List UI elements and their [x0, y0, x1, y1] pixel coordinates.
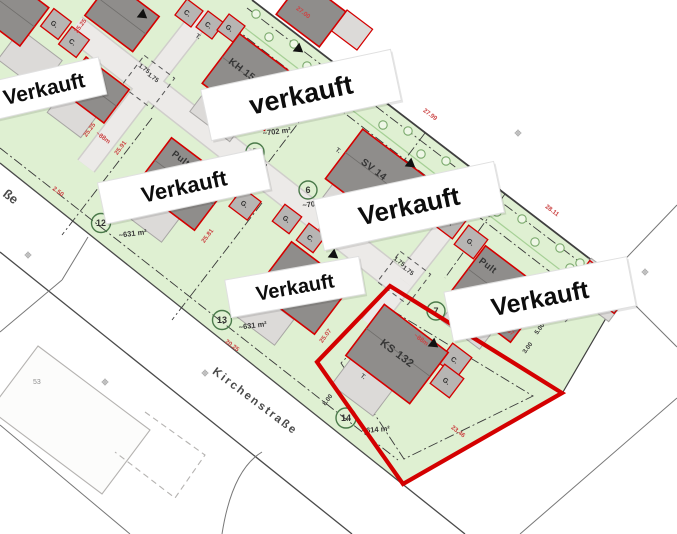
plot-12-number: 12	[96, 218, 106, 228]
site-plan-screenshot: 53	[0, 0, 677, 534]
plot-13-number: 13	[217, 315, 227, 325]
neighbor-house-number: 53	[33, 379, 41, 386]
plot-14-number: 14	[341, 413, 351, 423]
plot-6-number: 6	[305, 185, 310, 195]
site-plan-image: 53	[0, 0, 677, 534]
